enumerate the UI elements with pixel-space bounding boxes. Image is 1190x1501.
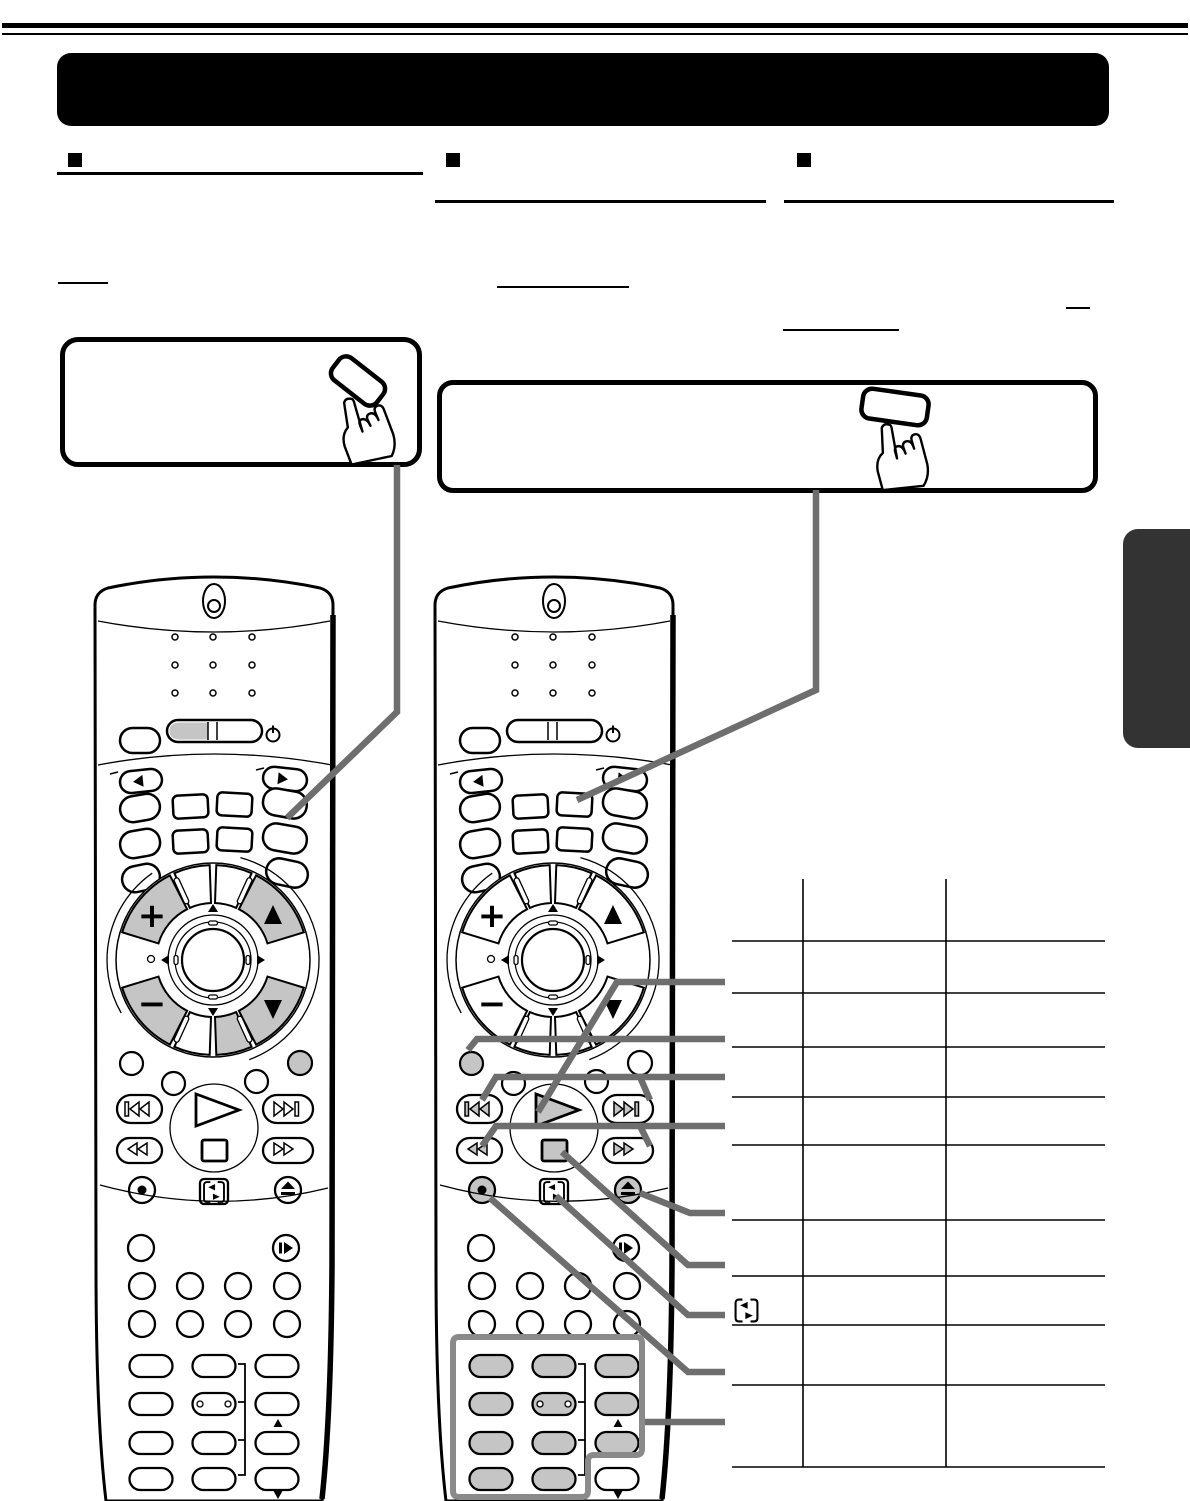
- callout-1-illustration: [327, 353, 397, 465]
- line-art-layer: + −: [0, 0, 1190, 1501]
- reference-table: [732, 879, 1105, 1467]
- table-sound-swap-icon: [736, 1300, 758, 1322]
- callout-1-button: [327, 353, 388, 410]
- manual-page: + −: [0, 0, 1190, 1501]
- callout-2-illustration: [860, 388, 930, 491]
- remote-a: [95, 577, 333, 1501]
- callout-2-button: [860, 388, 930, 427]
